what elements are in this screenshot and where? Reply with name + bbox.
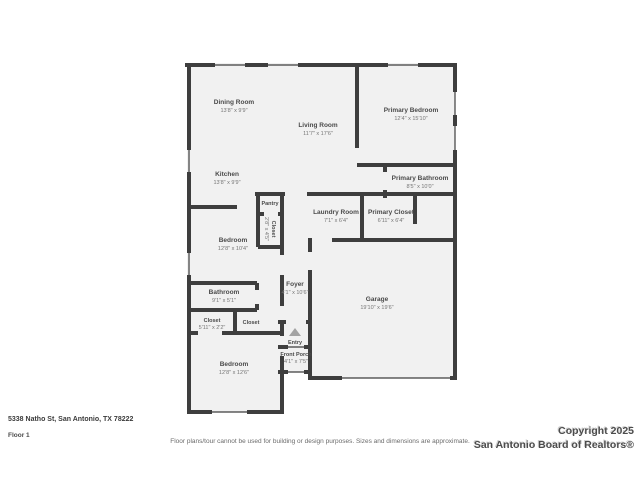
- room-dims-bedroom-3: 12'8" x 12'6": [219, 370, 249, 376]
- room-dims-bedroom-2: 12'8" x 10'4": [218, 246, 248, 252]
- copyright-notice: Copyright 2025 San Antonio Board of Real…: [474, 424, 634, 452]
- room-name-closet-1: Closet: [204, 318, 221, 324]
- room-dims-living-room: 11'7" x 17'6": [303, 131, 333, 137]
- copyright-line-2: San Antonio Board of Realtors®: [474, 438, 634, 452]
- room-name-front-porch: Front Porch: [280, 352, 312, 358]
- room-name-dining-room: Dining Room: [214, 99, 255, 106]
- floor-plan-canvas: Dining Room 13'8" x 9'9" Living Room 11'…: [0, 0, 640, 480]
- room-name-closet-2: Closet: [243, 320, 260, 326]
- room-dims-foyer: 4'1" x 10'6": [281, 290, 308, 296]
- room-name-bedroom-2: Bedroom: [219, 237, 248, 244]
- room-dims-kitchen: 13'8" x 9'9": [213, 180, 240, 186]
- room-name-living-room: Living Room: [298, 122, 338, 129]
- floor-plan: Dining Room 13'8" x 9'9" Living Room 11'…: [0, 0, 640, 480]
- property-address: 5338 Natho St, San Antonio, TX 78222: [8, 416, 133, 423]
- room-name-entry: Entry: [288, 340, 303, 346]
- room-dims-garage: 19'10" x 19'6": [360, 305, 393, 311]
- room-dims-primary-bedroom: 12'4" x 15'10": [394, 116, 427, 122]
- room-name-hall-closet: Closet: [270, 221, 276, 238]
- room-name-foyer: Foyer: [286, 281, 304, 288]
- room-name-primary-bathroom: Primary Bathroom: [392, 175, 449, 182]
- room-name-bathroom: Bathroom: [209, 289, 240, 296]
- room-name-pantry: Pantry: [261, 201, 279, 207]
- room-dims-closet-1: 5'11" x 2'2": [199, 325, 226, 331]
- room-name-primary-bedroom: Primary Bedroom: [384, 107, 439, 114]
- room-dims-laundry-room: 7'1" x 6'4": [324, 218, 348, 224]
- room-dims-hall-closet: 2'8" x 4'5": [263, 217, 269, 241]
- room-dims-primary-bathroom: 8'5" x 10'0": [406, 184, 433, 190]
- room-dims-front-porch: 4'1" x 7'5": [284, 359, 308, 365]
- copyright-line-1: Copyright 2025: [474, 424, 634, 438]
- room-name-garage: Garage: [366, 296, 389, 303]
- room-name-bedroom-3: Bedroom: [220, 361, 249, 368]
- room-dims-dining-room: 13'8" x 9'9": [220, 108, 247, 114]
- room-name-laundry-room: Laundry Room: [313, 209, 359, 216]
- room-dims-primary-closet: 6'11" x 6'4": [378, 218, 405, 224]
- room-name-kitchen: Kitchen: [215, 171, 239, 178]
- room-dims-bathroom: 9'1" x 5'1": [212, 298, 236, 304]
- room-name-primary-closet: Primary Closet: [368, 209, 415, 216]
